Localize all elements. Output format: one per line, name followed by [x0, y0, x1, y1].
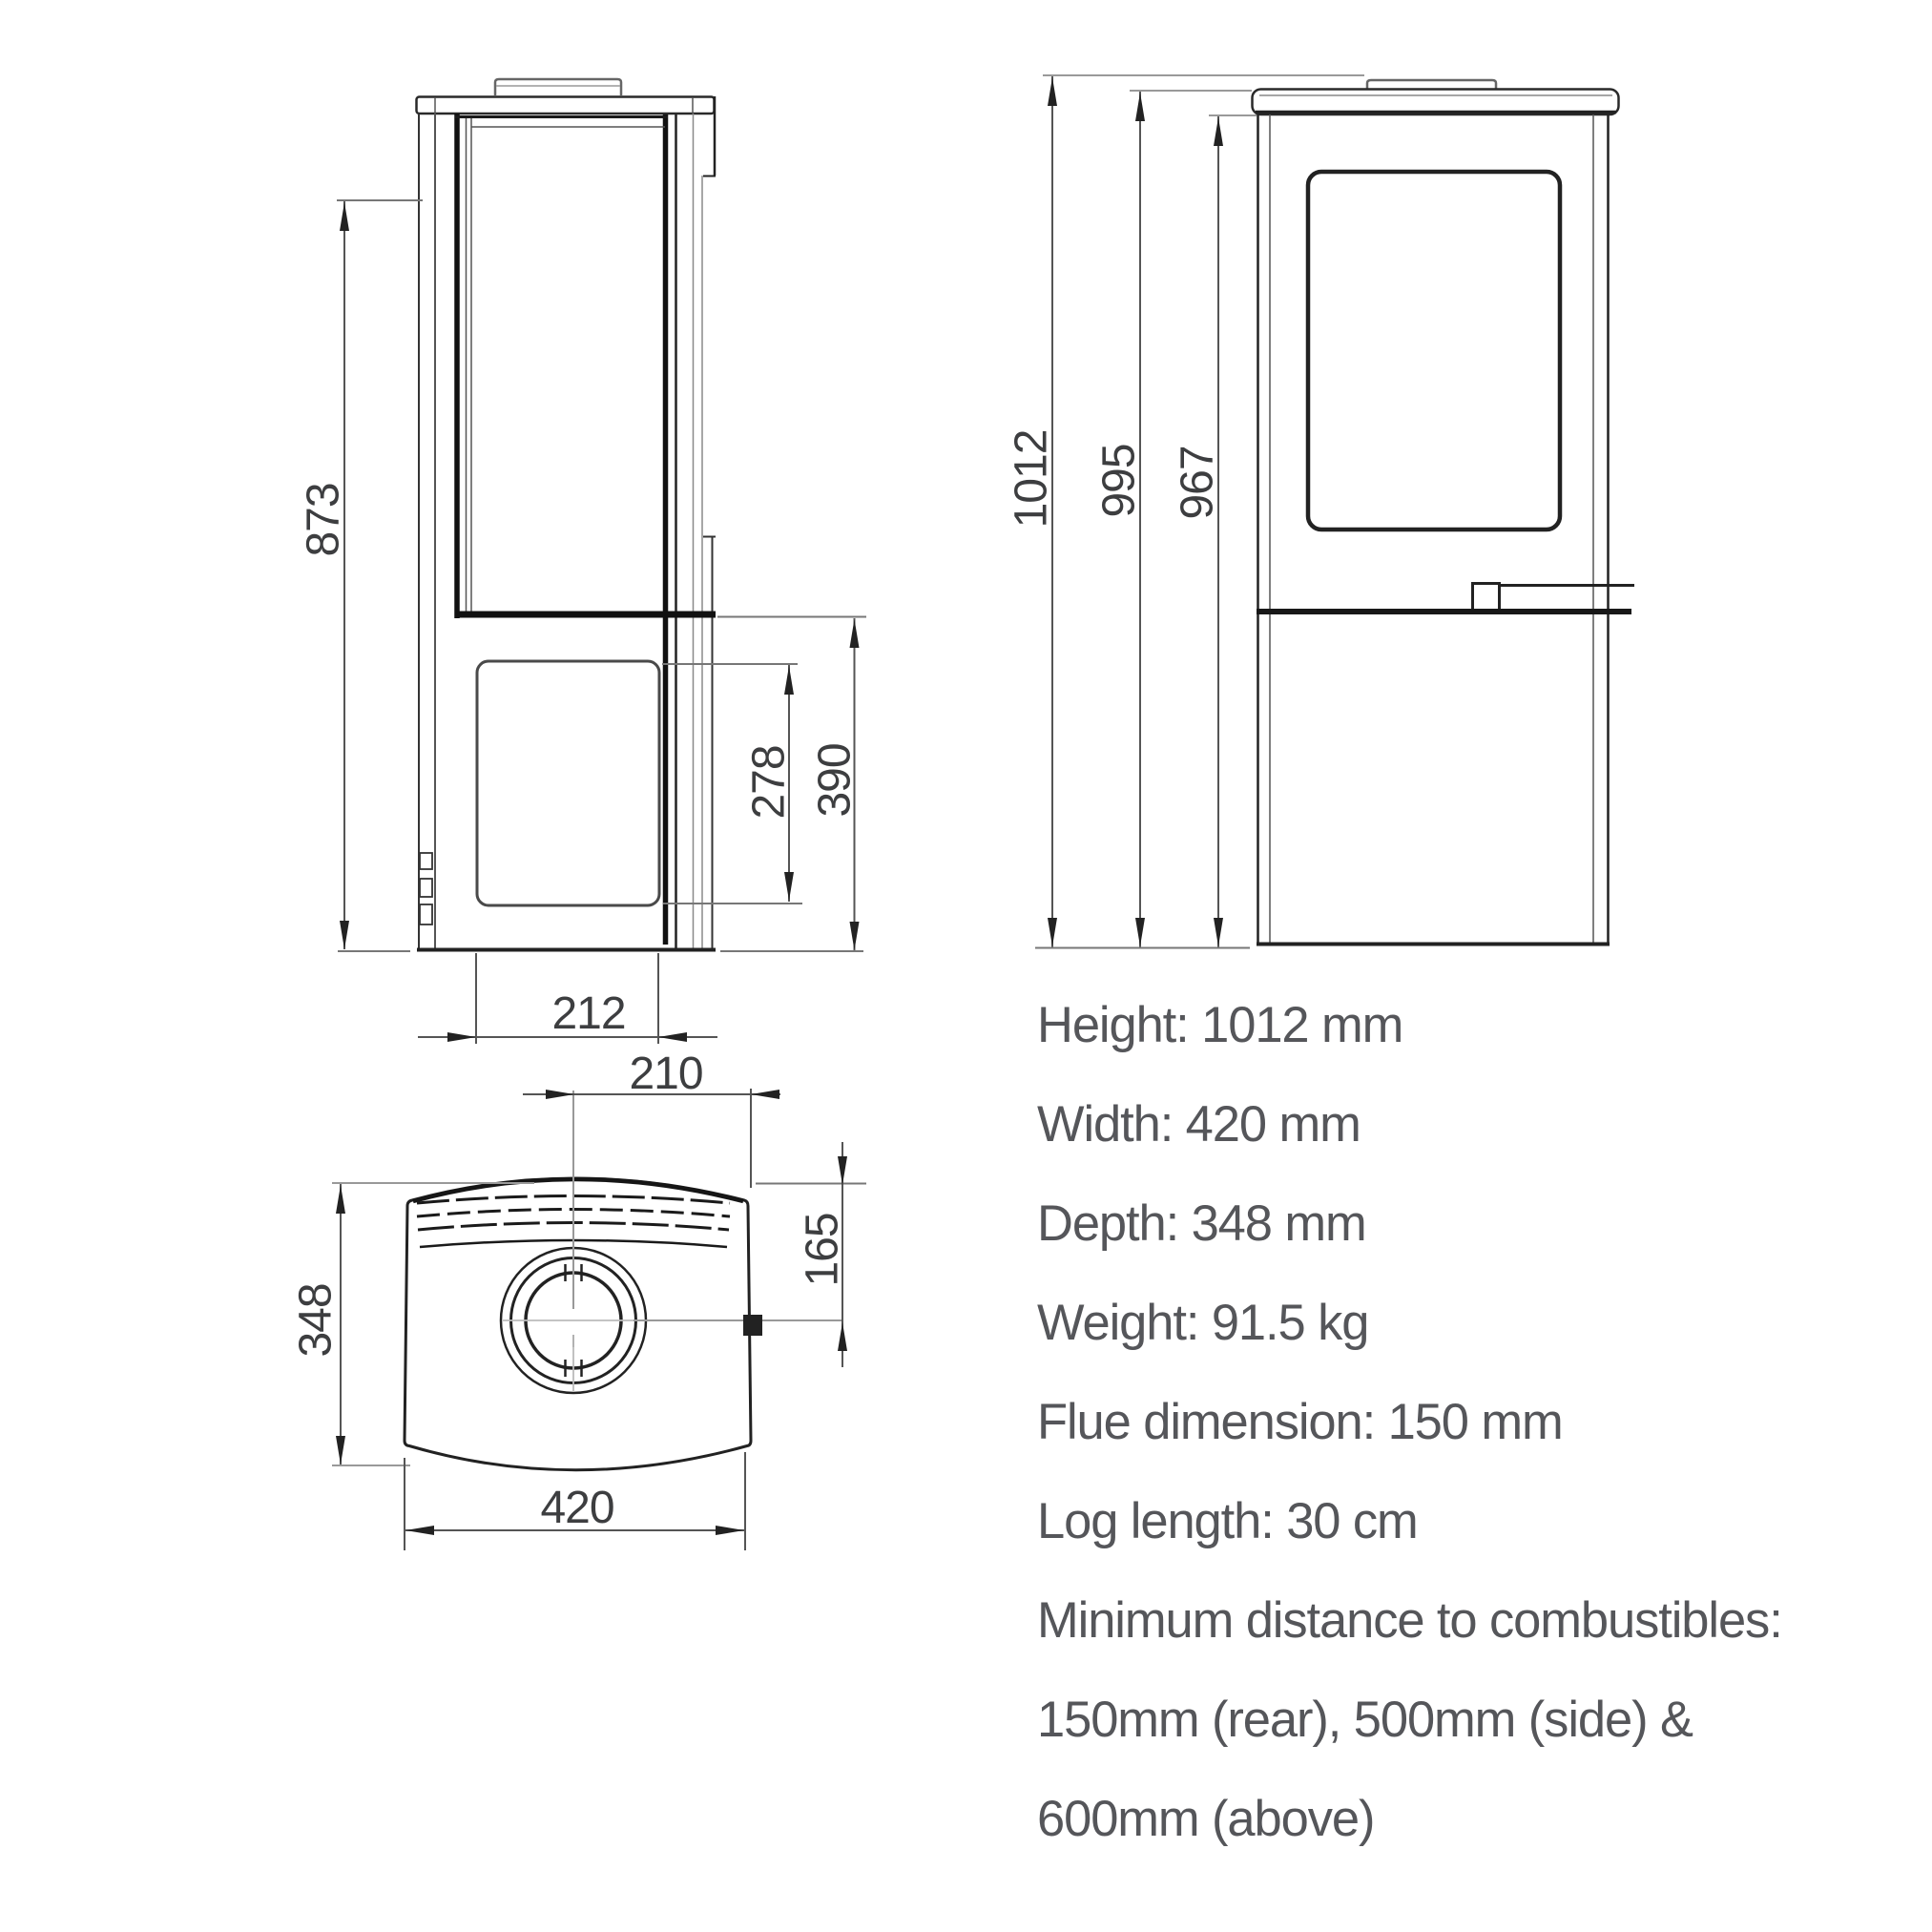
svg-text:873: 873	[299, 483, 349, 556]
svg-text:278: 278	[744, 745, 795, 819]
svg-text:995: 995	[1094, 444, 1145, 517]
svg-text:210: 210	[629, 1049, 702, 1099]
svg-text:1012: 1012	[1007, 430, 1057, 529]
svg-text:390: 390	[810, 743, 861, 817]
svg-text:967: 967	[1173, 446, 1223, 519]
svg-text:165: 165	[798, 1213, 848, 1286]
svg-text:348: 348	[291, 1283, 342, 1357]
svg-text:420: 420	[540, 1483, 613, 1533]
svg-text:212: 212	[551, 988, 625, 1039]
